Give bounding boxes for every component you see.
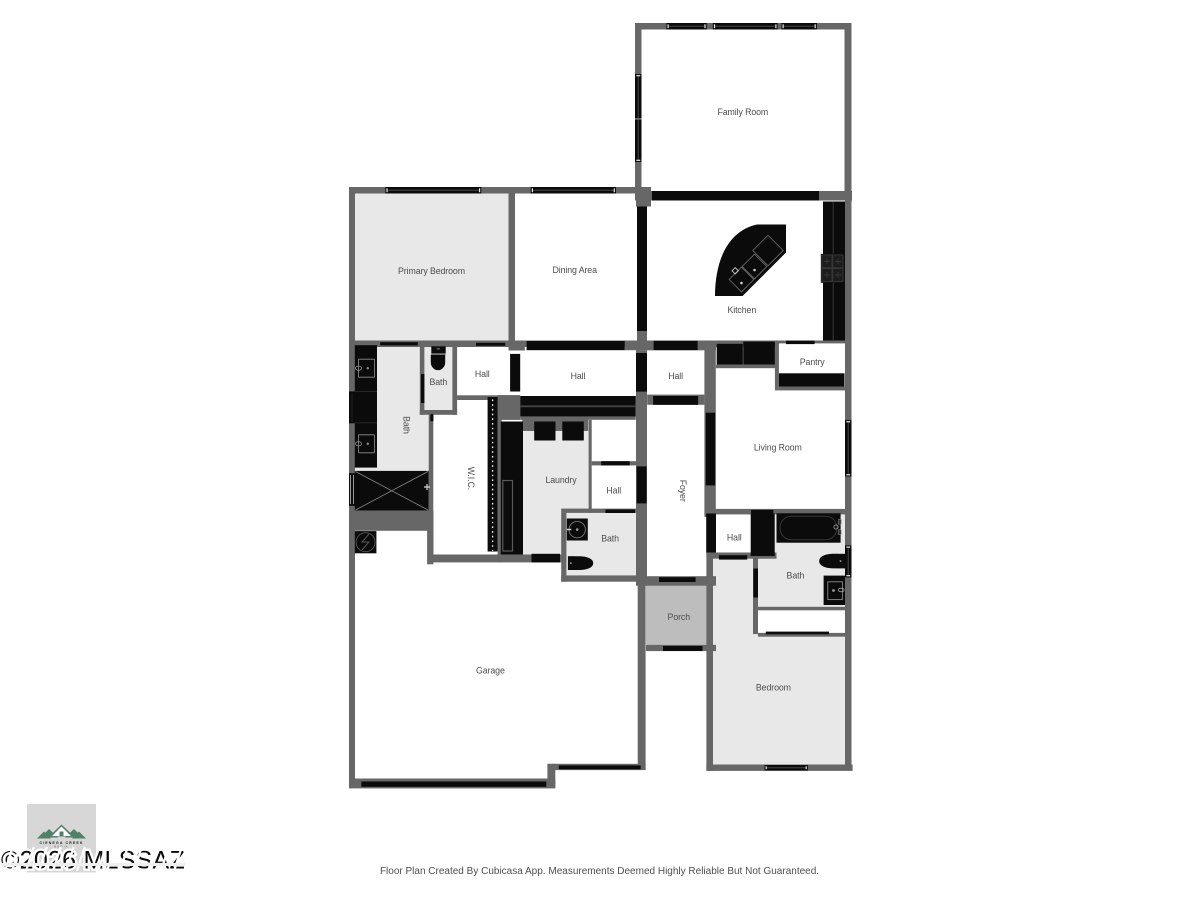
svg-text:Family Room: Family Room	[717, 107, 768, 117]
svg-text:Bedroom: Bedroom	[756, 683, 791, 693]
svg-text:Bath: Bath	[429, 377, 447, 387]
svg-text:Bath: Bath	[787, 571, 805, 581]
svg-text:Pantry: Pantry	[800, 357, 826, 367]
svg-text:Laundry: Laundry	[545, 475, 577, 485]
svg-text:Hall: Hall	[606, 486, 621, 496]
svg-text:Hall: Hall	[475, 369, 490, 379]
svg-text:Foyer: Foyer	[678, 480, 688, 502]
svg-text:Kitchen: Kitchen	[727, 305, 756, 315]
svg-text:Porch: Porch	[668, 612, 691, 622]
svg-text:Living Room: Living Room	[754, 443, 802, 453]
svg-text:Hall: Hall	[571, 371, 586, 381]
svg-text:Bath: Bath	[601, 534, 619, 544]
svg-text:Floor Plan Created By Cubicasa: Floor Plan Created By Cubicasa App. Meas…	[380, 866, 819, 877]
svg-text:W.I.C.: W.I.C.	[466, 467, 476, 490]
svg-text:Hall: Hall	[668, 371, 683, 381]
svg-text:Garage: Garage	[476, 666, 505, 676]
svg-text:CIENEGA CREEK: CIENEGA CREEK	[39, 841, 83, 845]
svg-text:Hall: Hall	[727, 533, 742, 543]
svg-text:Primary Bedroom: Primary Bedroom	[398, 266, 465, 276]
svg-text:Bath: Bath	[401, 416, 411, 434]
svg-text:Dining Area: Dining Area	[553, 265, 598, 275]
